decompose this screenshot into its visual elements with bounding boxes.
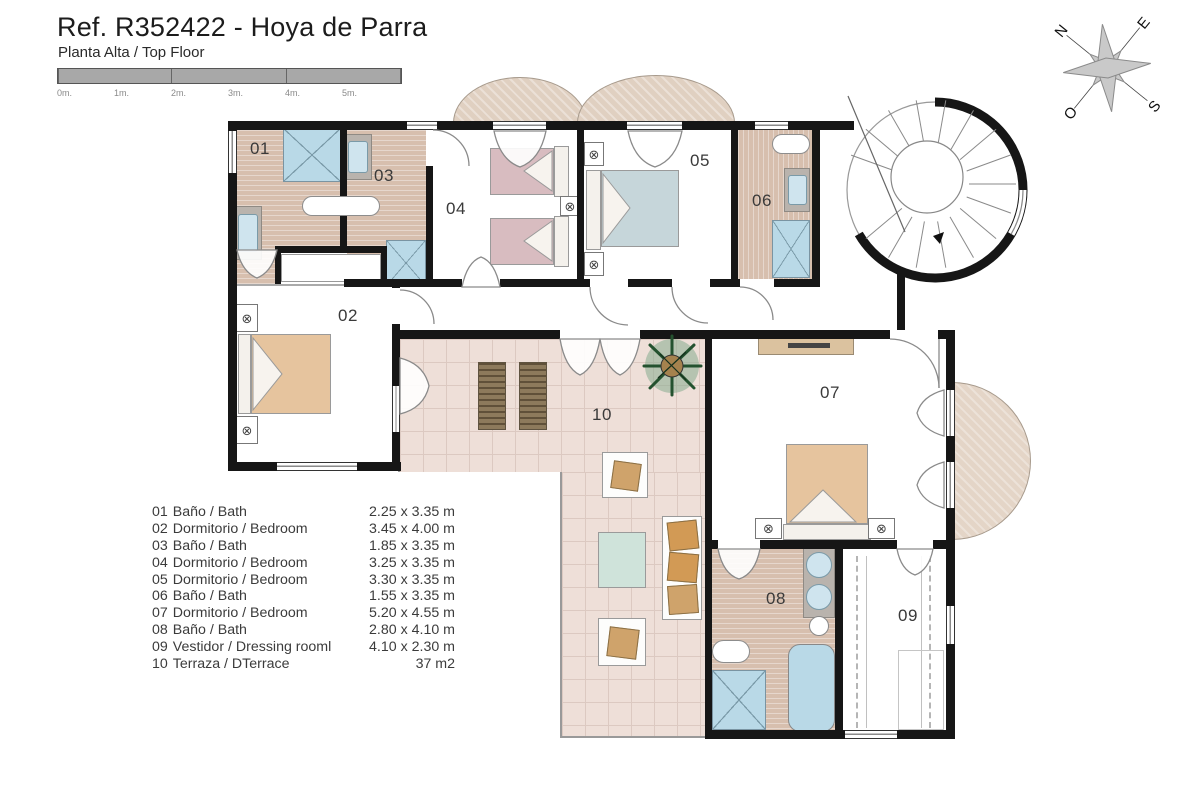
shower [712,670,766,730]
room-label-05: 05 [690,151,710,171]
scale-segment [58,69,59,83]
sink [806,552,832,578]
nightstand-lamp: ⊗ [584,252,604,276]
wall [426,166,433,279]
wall [835,548,843,731]
door-gap [740,279,774,287]
compass-rose: N E S O [1015,0,1200,162]
double-bed [786,444,868,524]
sink [806,584,832,610]
wall [946,330,955,549]
cushion [606,626,639,659]
legend-dims: 37 m2 [416,656,455,673]
scale-bar [57,68,402,84]
lamp-icon: ⊗ [565,200,576,213]
legend-name: Terraza / DTerrace [173,656,290,672]
legend-name: Dormitorio / Bedroom [173,555,308,571]
legend-name: Baño / Bath [173,622,247,638]
bed-headboard [554,216,569,267]
door-gap [897,540,933,549]
legend-num: 09 [152,639,168,655]
cushion [610,460,642,492]
compass-n-label: N [1052,22,1072,41]
legend-dims: 3.45 x 4.00 m [369,521,455,538]
wall [705,330,712,739]
scale-label: 1m. [114,88,129,98]
legend-row: 08Baño / Bath2.80 x 4.10 m [152,622,455,639]
door-gap [718,540,760,549]
dresser-object [788,343,830,348]
page-title: Ref. R352422 - Hoya de Parra [57,12,427,43]
cushion [667,584,699,615]
door-gap [392,288,400,324]
bed-headboard [238,334,251,414]
nightstand-lamp: ⊗ [868,518,895,539]
legend-row: 03Baño / Bath1.85 x 3.35 m [152,538,455,555]
terrace-table [598,532,646,588]
window [277,462,357,471]
awning-canopy [453,77,587,123]
legend-dims: 1.85 x 3.35 m [369,538,455,555]
legend-room: 09Vestidor / Dressing rooml [152,639,331,656]
legend-dims: 4.10 x 2.30 m [369,639,455,656]
legend-dims: 3.25 x 3.35 m [369,555,455,572]
legend-row: 05Dormitorio / Bedroom3.30 x 3.35 m [152,572,455,589]
room-label-06: 06 [752,191,772,211]
door-gap [590,279,628,287]
legend-name: Vestidor / Dressing rooml [173,639,332,655]
nightstand-lamp: ⊗ [236,416,258,444]
room-label-02: 02 [338,306,358,326]
room-label-10: 10 [592,405,612,425]
toilet [772,134,810,154]
bathtub [302,196,380,216]
legend-dims: 2.80 x 4.10 m [369,622,455,639]
legend-num: 03 [152,538,168,554]
lamp-icon: ⊗ [876,522,887,535]
scale-segment [287,69,401,83]
window [946,390,955,436]
legend-num: 01 [152,504,168,520]
lamp-icon: ⊗ [242,312,253,325]
legend-num: 02 [152,521,168,537]
bathtub [788,644,835,732]
cushion [667,552,699,584]
legend-dims: 3.30 x 3.35 m [369,572,455,589]
legend-row: 09Vestidor / Dressing rooml4.10 x 2.30 m [152,639,455,656]
sink [788,175,807,205]
legend-dims: 2.25 x 3.35 m [369,504,455,521]
legend-row: 10Terraza / DTerrace37 m2 [152,656,455,673]
legend-row: 04Dormitorio / Bedroom3.25 x 3.35 m [152,555,455,572]
window [392,386,400,432]
room-label-01: 01 [250,139,270,159]
room-legend: 01Baño / Bath2.25 x 3.35 m 02Dormitorio … [152,504,455,673]
scale-label: 2m. [171,88,186,98]
legend-num: 06 [152,588,168,604]
toilet [712,640,750,663]
wall [897,266,905,332]
sink [348,141,368,173]
legend-dims: 5.20 x 4.55 m [369,605,455,622]
legend-name: Baño / Bath [173,538,247,554]
sun-lounger [519,362,547,430]
sun-lounger [478,362,506,430]
legend-num: 05 [152,572,168,588]
legend-dims: 1.55 x 3.35 m [369,588,455,605]
scale-segment [172,69,286,83]
legend-room: 06Baño / Bath [152,588,247,605]
room-label-08: 08 [766,589,786,609]
legend-name: Dormitorio / Bedroom [173,605,308,621]
scale-segment [58,69,172,83]
legend-room: 05Dormitorio / Bedroom [152,572,308,589]
legend-row: 02Dormitorio / Bedroom3.45 x 4.00 m [152,521,455,538]
terrace-floor [398,339,707,472]
door-gap [462,279,500,287]
cushion [667,520,700,552]
spiral-staircase [847,96,1023,278]
floorplan-page: Ref. R352422 - Hoya de Parra Planta Alta… [0,0,1200,800]
lamp-icon: ⊗ [763,522,774,535]
twin-bed [490,148,554,195]
legend-row: 06Baño / Bath1.55 x 3.35 m [152,588,455,605]
legend-room: 08Baño / Bath [152,622,247,639]
window [493,121,546,130]
legend-name: Baño / Bath [173,588,247,604]
sink [238,214,258,252]
room-label-09: 09 [898,606,918,626]
wall [577,128,584,279]
compass-s-label: S [1145,97,1165,115]
scale-label: 3m. [228,88,243,98]
legend-room: 03Baño / Bath [152,538,247,555]
window [946,606,955,644]
window [755,121,788,130]
awning-canopy [577,75,735,123]
wall [228,121,237,471]
legend-row: 01Baño / Bath2.25 x 3.35 m [152,504,455,521]
legend-num: 07 [152,605,168,621]
window [228,131,237,173]
balcony-semicircle [952,382,1031,540]
bed-headboard [586,170,601,250]
room-label-03: 03 [374,166,394,186]
legend-room: 04Dormitorio / Bedroom [152,555,308,572]
door-gap [560,330,640,339]
legend-num: 08 [152,622,168,638]
scale-label: 0m. [57,88,72,98]
nightstand-lamp: ⊗ [755,518,782,539]
legend-num: 04 [152,555,168,571]
room-label-07: 07 [820,383,840,403]
window [845,730,897,739]
wall [731,128,738,279]
room-label-04: 04 [446,199,466,219]
legend-room: 01Baño / Bath [152,504,247,521]
wall [275,246,281,284]
legend-room: 02Dormitorio / Bedroom [152,521,308,538]
window [407,121,437,130]
wall [275,246,387,253]
window [946,462,955,508]
compass-e-label: E [1134,14,1154,32]
compass-o-label: O [1061,104,1082,124]
nightstand-lamp: ⊗ [584,142,604,166]
wall [340,128,347,247]
page-subtitle: Planta Alta / Top Floor [58,44,204,61]
wall [381,250,387,284]
legend-row: 07Dormitorio / Bedroom5.20 x 4.55 m [152,605,455,622]
bed-headboard [783,524,871,540]
closet-rail [866,556,867,728]
lamp-icon: ⊗ [589,258,600,271]
bidet [809,616,829,636]
door-gap [672,279,710,287]
closet-rail-dashed [856,556,858,728]
wardrobe [281,254,381,282]
legend-name: Dormitorio / Bedroom [173,572,308,588]
closet-shelf [898,650,944,730]
legend-name: Dormitorio / Bedroom [173,521,308,537]
door-gap [890,330,938,339]
wall [705,730,955,739]
legend-num: 10 [152,656,168,672]
shower [772,220,810,278]
wall [392,330,712,339]
scale-label: 4m. [285,88,300,98]
double-bed [251,334,331,414]
bed-headboard [554,146,569,197]
lamp-icon: ⊗ [589,148,600,161]
nightstand-lamp: ⊗ [236,304,258,332]
shower [283,128,341,182]
scale-label: 5m. [342,88,357,98]
legend-name: Baño / Bath [173,504,247,520]
legend-room: 10Terraza / DTerrace [152,656,289,673]
lamp-icon: ⊗ [242,424,253,437]
window [627,121,682,130]
double-bed [601,170,679,247]
legend-room: 07Dormitorio / Bedroom [152,605,308,622]
wall [812,121,820,287]
twin-bed [490,218,554,265]
